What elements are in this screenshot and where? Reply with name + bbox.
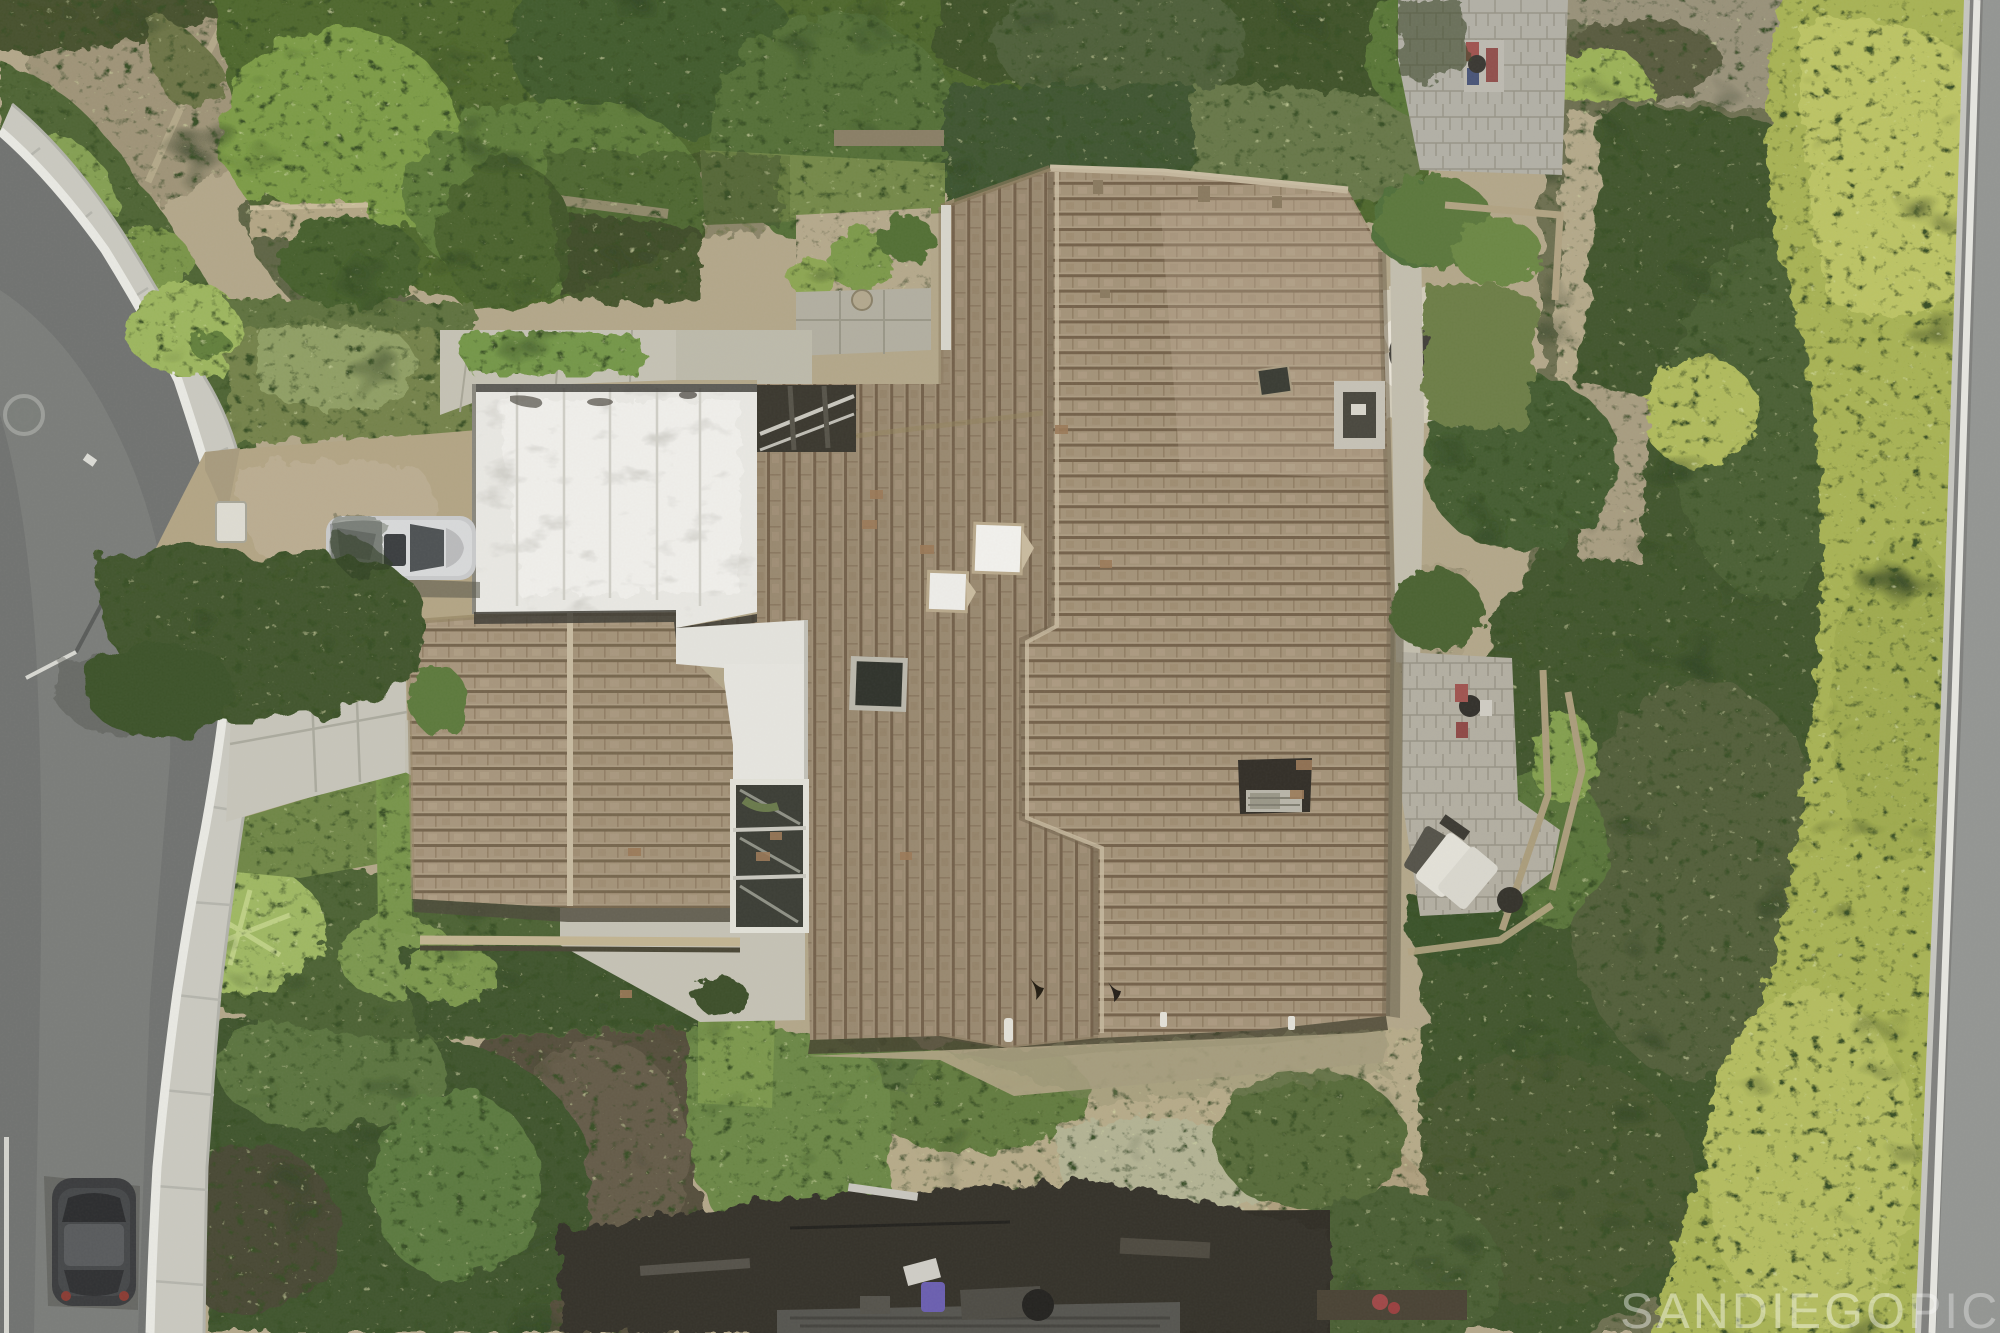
svg-text:SANDIEGOPIC: SANDIEGOPIC	[1620, 1283, 2000, 1333]
